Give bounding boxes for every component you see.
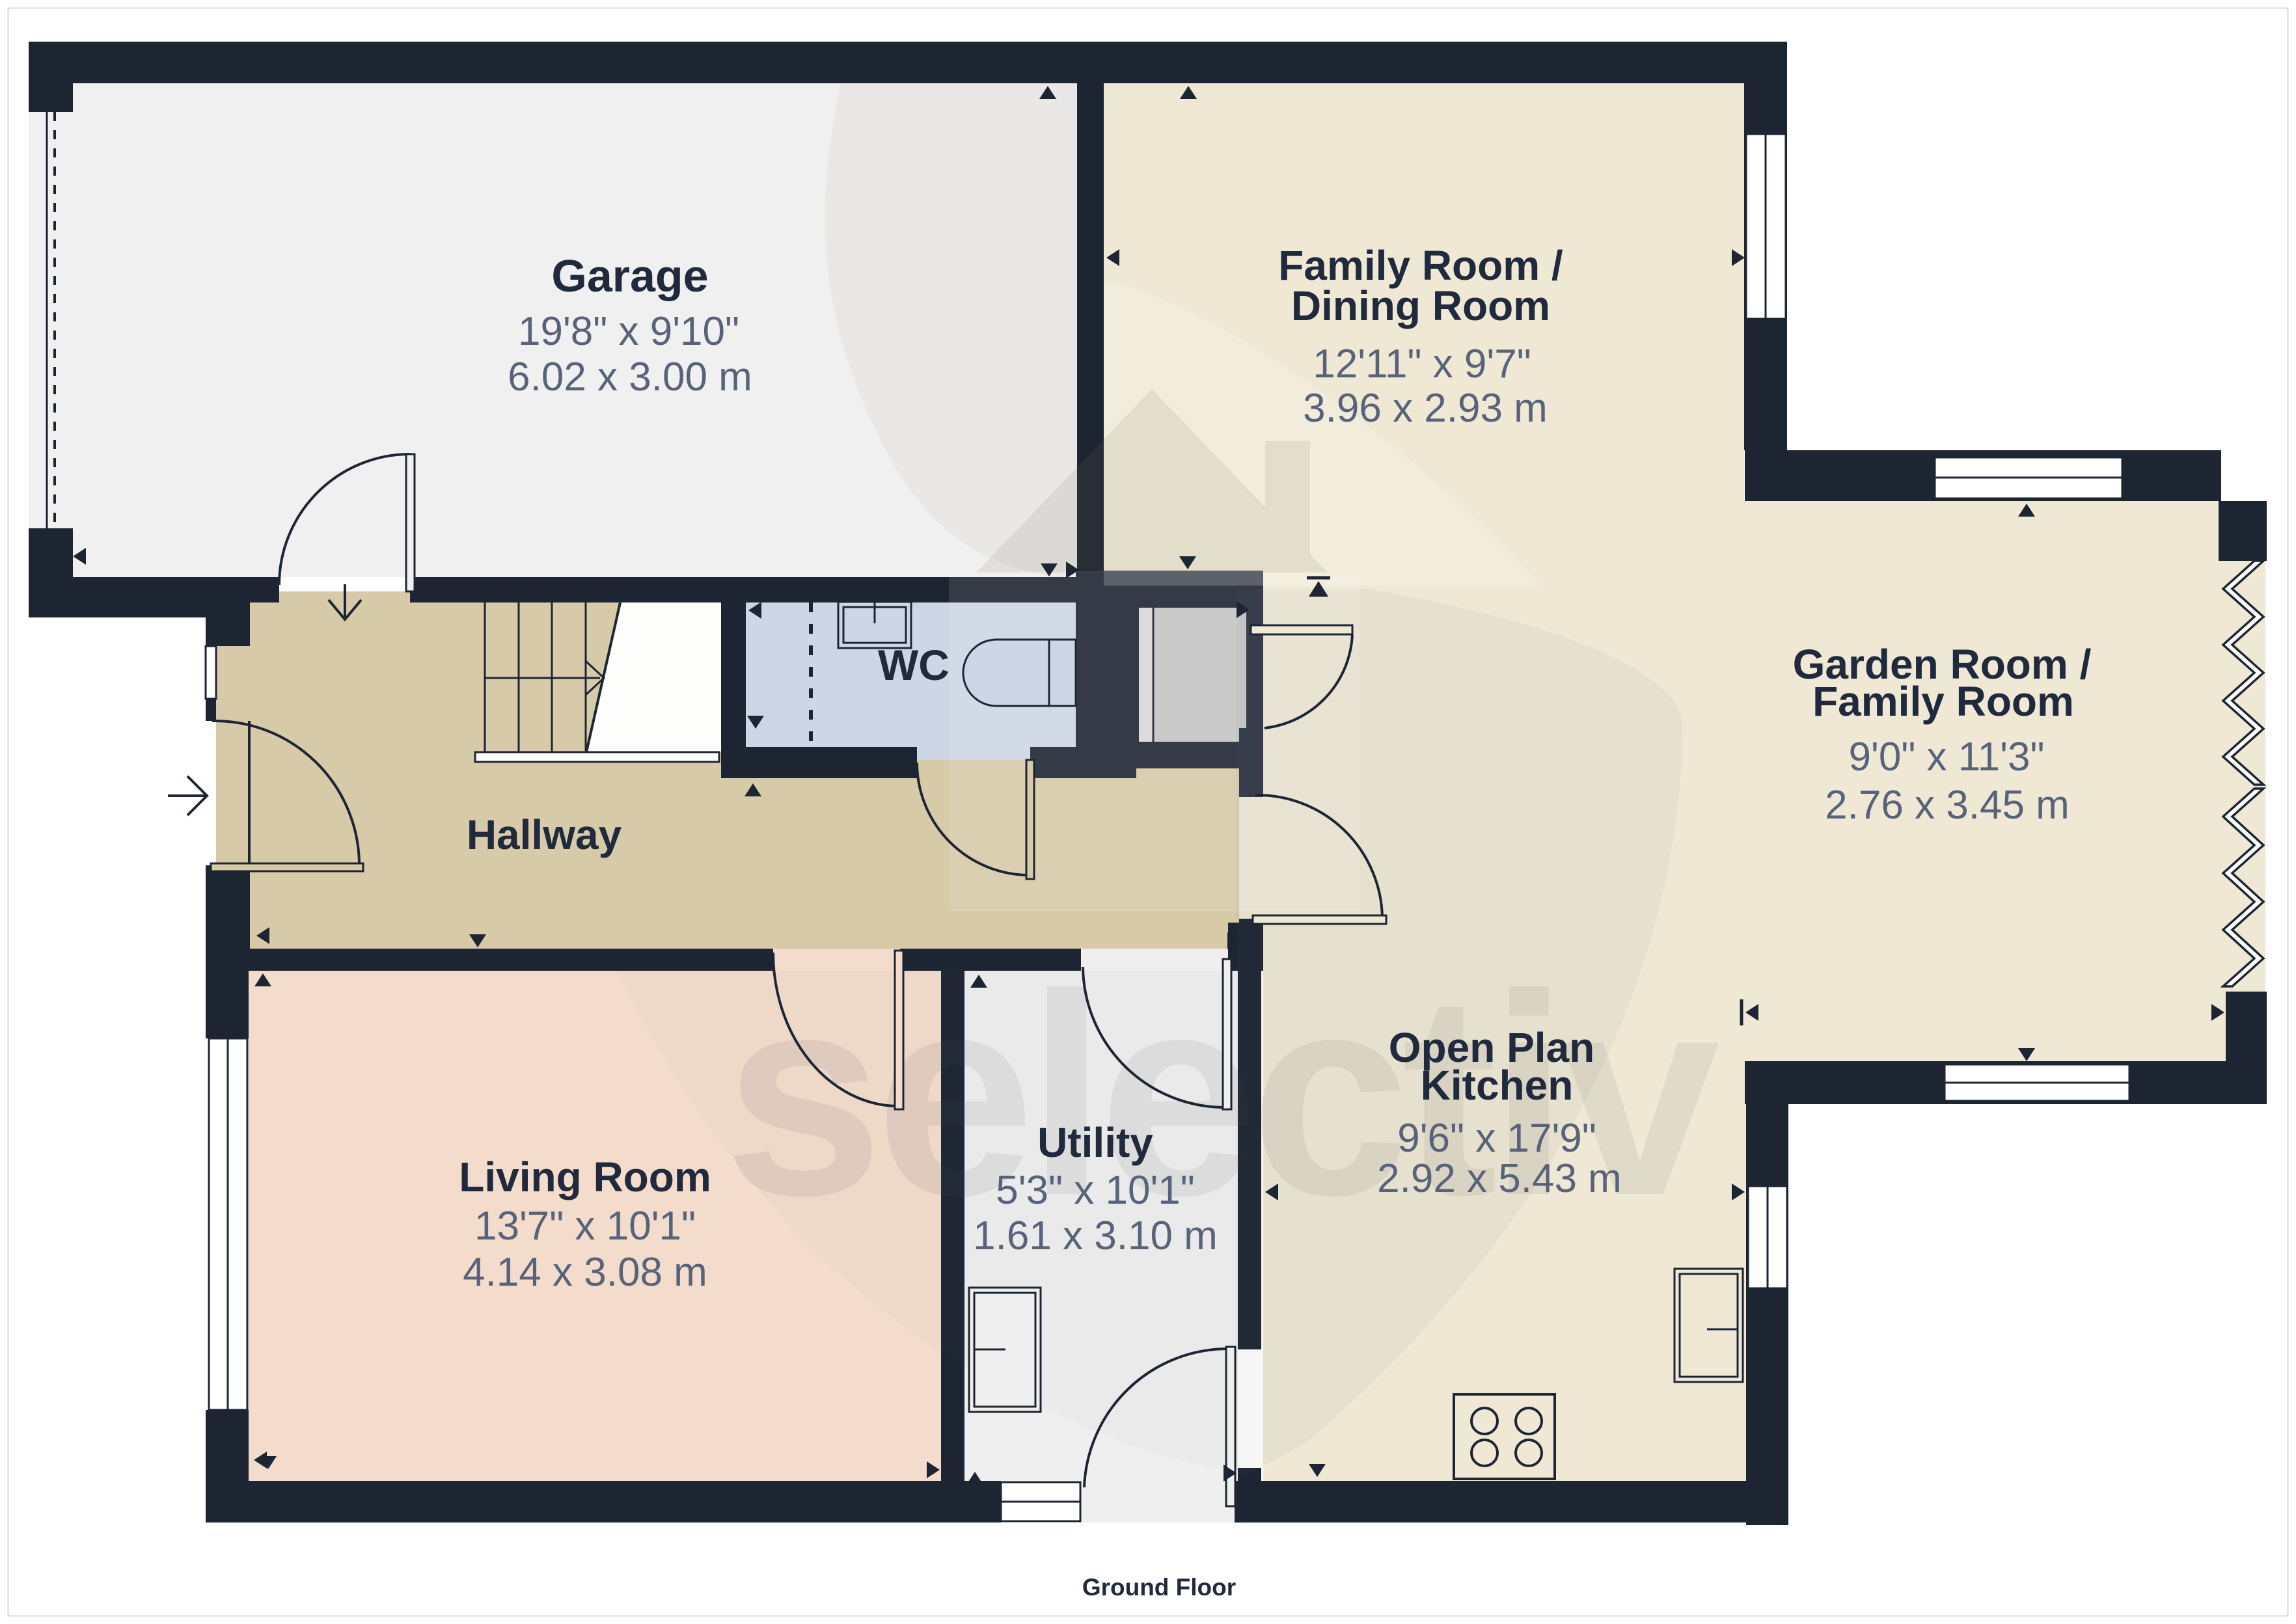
svg-text:Garage: Garage [551,250,708,301]
svg-text:9'6" x 17'9": 9'6" x 17'9" [1397,1116,1596,1161]
svg-text:WC: WC [878,641,950,689]
svg-text:13'7" x 10'1": 13'7" x 10'1" [474,1204,696,1249]
svg-text:9'0" x 11'3": 9'0" x 11'3" [1849,735,2045,779]
svg-text:12'11" x 9'7": 12'11" x 9'7" [1313,342,1531,386]
svg-text:4.14 x 3.08 m: 4.14 x 3.08 m [463,1250,707,1295]
svg-text:Dining Room: Dining Room [1291,282,1550,329]
svg-text:1.61 x 3.10 m: 1.61 x 3.10 m [973,1213,1218,1258]
svg-text:19'8" x 9'10": 19'8" x 9'10" [518,309,739,354]
svg-text:Hallway: Hallway [467,811,622,858]
svg-text:Ground Floor: Ground Floor [1082,1574,1236,1601]
svg-text:2.76 x 3.45 m: 2.76 x 3.45 m [1825,783,2070,828]
svg-text:5'3" x 10'1": 5'3" x 10'1" [996,1168,1195,1213]
svg-text:2.92 x 5.43 m: 2.92 x 5.43 m [1377,1156,1622,1201]
svg-text:Living Room: Living Room [459,1154,711,1200]
svg-text:3.96 x 2.93 m: 3.96 x 2.93 m [1303,386,1548,431]
svg-text:Utility: Utility [1037,1119,1153,1166]
svg-text:Kitchen: Kitchen [1421,1062,1574,1109]
svg-text:Family Room: Family Room [1812,678,2074,725]
svg-text:6.02 x 3.00 m: 6.02 x 3.00 m [508,355,752,399]
